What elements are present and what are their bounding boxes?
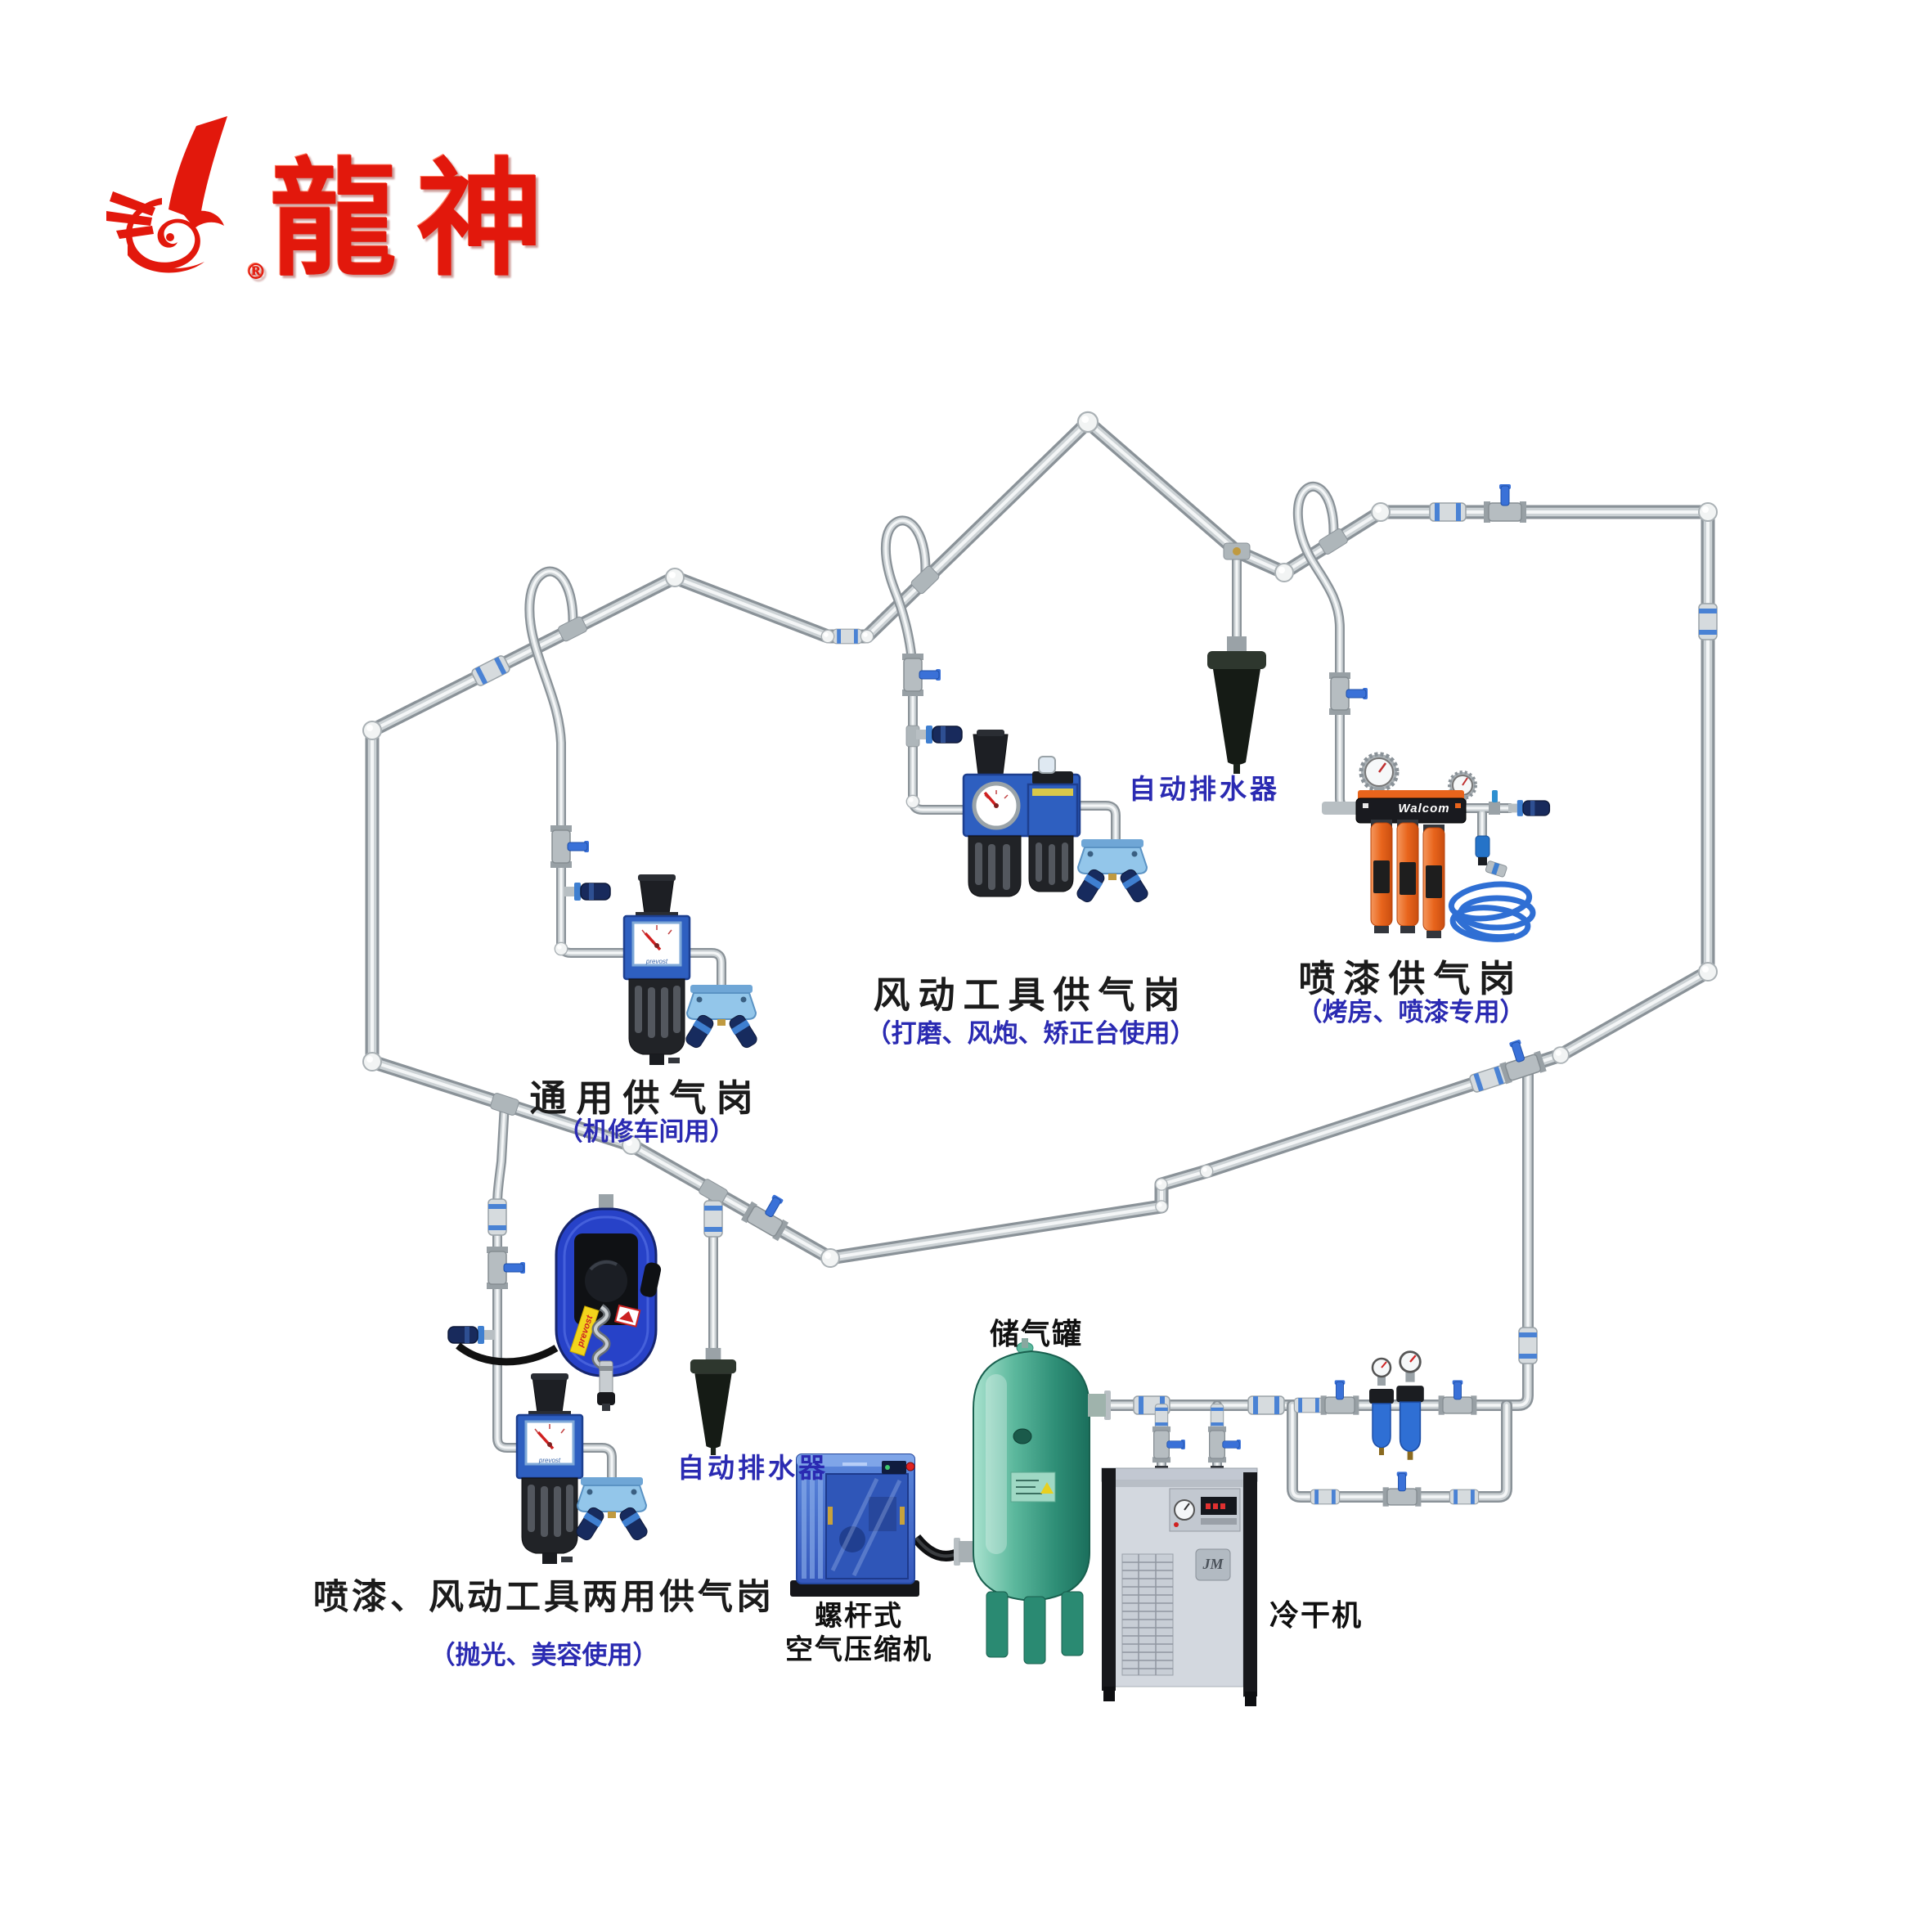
walcom-outlet-pipe [1466, 808, 1510, 838]
compressor-label-line1: 螺杆式 [815, 1601, 903, 1632]
tank-label: 储气罐 [990, 1310, 1083, 1353]
diagram-canvas: prevost [0, 0, 1932, 1932]
auto-drain-top-label: 自动排水器 [1129, 767, 1280, 806]
gauge-brand-text: prevost [645, 958, 668, 965]
station-paint-subtitle: （烤房、喷漆专用） [1251, 991, 1570, 1028]
quick-coupler-icon [916, 726, 962, 744]
compressor-label: 螺杆式 空气压缩机 [777, 1600, 941, 1667]
tee-nub [1233, 547, 1241, 555]
walcom-brand-text: Walcom [1385, 802, 1463, 815]
auto-drain-top [1207, 636, 1266, 774]
station-general-subtitle: （机修车间用） [499, 1111, 793, 1148]
dragon-logo-icon [106, 116, 227, 272]
walcom-filter-unit [1322, 754, 1549, 942]
station-dual-subtitle: （抛光、美容使用） [290, 1634, 798, 1671]
gauge-brand-text: prevost [538, 1457, 561, 1464]
dryer-badge-text: JM [1197, 1556, 1229, 1573]
air-tank [954, 1338, 1111, 1664]
auto-drain-bottom-label: 自动排水器 [677, 1446, 829, 1485]
station-pneumatic-title: 风动工具供气岗 [859, 965, 1202, 1018]
dual-outlet-manifold-icon [1074, 839, 1150, 905]
orange-cartridges [1371, 820, 1445, 938]
hose-reel: prevost [556, 1194, 663, 1411]
logo-text: 龍神 [270, 116, 563, 300]
gooseneck-drop-pneumatic [886, 520, 967, 810]
quick-coupler-icon [448, 1326, 494, 1344]
dual-outlet-manifold-icon [683, 985, 759, 1050]
station-pneumatic-subtitle: （打磨、风炮、矫正台使用） [834, 1013, 1227, 1049]
equipment-header-pipe [1106, 1066, 1528, 1405]
dryer-label: 冷干机 [1269, 1592, 1363, 1634]
refrigerated-dryer [1102, 1466, 1257, 1706]
auto-drain-bottom [690, 1348, 736, 1455]
blue-hose-coil [1449, 880, 1533, 942]
quick-coupler-icon [564, 883, 610, 901]
dual-outlet-manifold-icon [573, 1477, 649, 1543]
quick-coupler-icon [1508, 800, 1549, 816]
registered-mark: ® [245, 260, 267, 285]
compressor-label-line2: 空气压缩机 [785, 1634, 932, 1665]
station-dual-title: 喷漆、风动工具两用供气岗 [290, 1569, 798, 1620]
frl-general: prevost [564, 874, 760, 1065]
